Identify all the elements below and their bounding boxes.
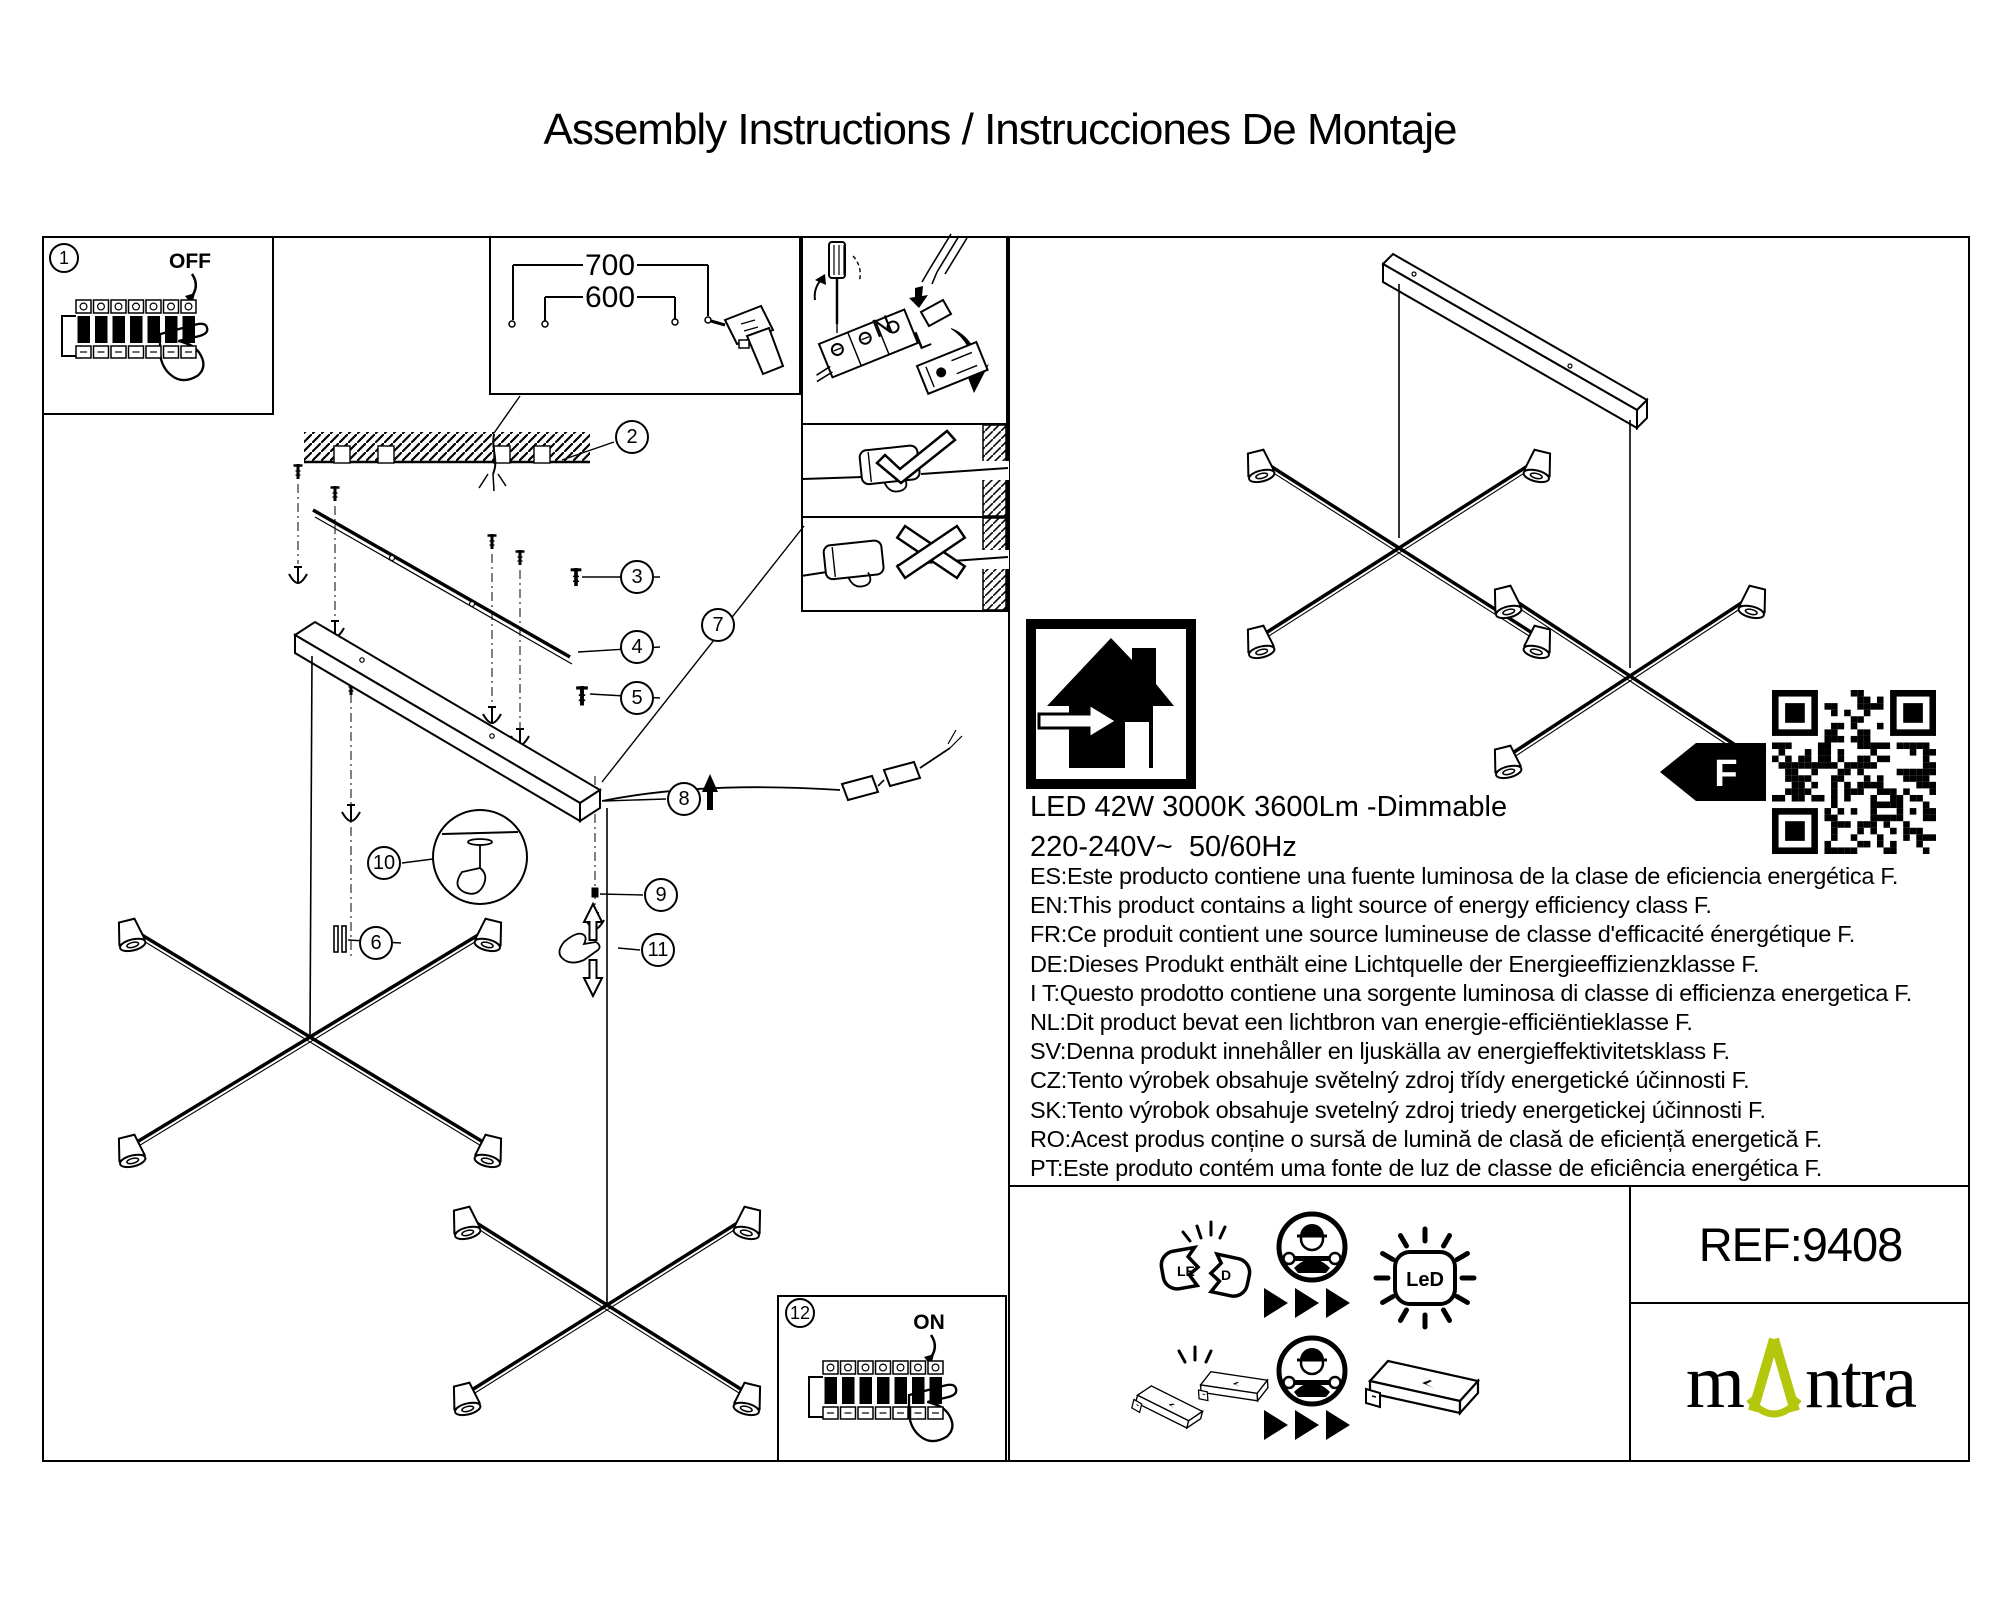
suspension-wire-left xyxy=(310,656,312,1035)
exploded-assembly-drawing xyxy=(42,236,1008,1462)
indoor-use-icon xyxy=(1025,618,1197,790)
lang-line-pt: PT:Este produto contém uma fonte de luz … xyxy=(1030,1154,1960,1183)
energy-class-text: ES:Este producto contiene una fuente lum… xyxy=(1030,862,1960,1183)
callout-3: 3 xyxy=(620,560,654,594)
detail-magnifier xyxy=(433,810,527,904)
breaker-on-label: ON xyxy=(913,1311,945,1334)
lang-line-sk: SK:Tento výrobok obsahuje svetelný zdroj… xyxy=(1030,1096,1960,1125)
lang-line-fr: FR:Ce produit contient une source lumine… xyxy=(1030,920,1960,949)
ceiling-hatch xyxy=(304,432,590,463)
lang-line-es: ES:Este producto contiene una fuente lum… xyxy=(1030,862,1960,891)
spacer-tube-part xyxy=(334,926,346,952)
mounting-rail xyxy=(313,510,572,664)
up-arrow-icon xyxy=(702,774,718,810)
lang-line-it: I T:Questo prodotto contiene una sorgent… xyxy=(1030,979,1960,1008)
energy-class-label: F xyxy=(1660,742,1768,804)
callout-6: 6 xyxy=(359,926,393,960)
leader-dimensions xyxy=(494,396,520,433)
canopy-bar xyxy=(295,622,600,821)
product-reference: REF:9408 xyxy=(1631,1187,1970,1302)
broken-driver-icon xyxy=(1130,1347,1268,1431)
broken-led-right-label: D xyxy=(1221,1267,1231,1283)
lang-line-cz: CZ:Tento výrobek obsahuje světelný zdroj… xyxy=(1030,1066,1960,1095)
technician-icon xyxy=(1279,1214,1345,1280)
brand-caret-icon xyxy=(1744,1331,1804,1427)
connector-cable xyxy=(602,730,962,801)
callout-8: 8 xyxy=(667,782,701,816)
led-ok-icon: LeD xyxy=(1376,1229,1474,1327)
technician-icon xyxy=(1279,1338,1345,1404)
adjust-up-arrow-icon xyxy=(584,904,602,940)
broken-led-left-label: LE xyxy=(1177,1263,1195,1279)
driver-icon xyxy=(1366,1361,1478,1413)
service-icons-panel: LE D LeD xyxy=(1010,1187,1627,1460)
lang-line-nl: NL:Dit product bevat een lichtbron van e… xyxy=(1030,1008,1960,1037)
callout-9: 9 xyxy=(644,878,678,912)
broken-led-icon: LE D xyxy=(1159,1222,1252,1299)
fixture-cross-arms xyxy=(1243,449,1770,781)
lang-line-sv: SV:Denna produkt innehåller en ljuskälla… xyxy=(1030,1037,1960,1066)
spec-line-1: LED 42W 3000K 3600Lm -Dimmable xyxy=(1030,788,1670,827)
callout-2: 2 xyxy=(615,420,649,454)
proceed-arrows-icon xyxy=(1264,1410,1350,1440)
callout-12: 12 xyxy=(785,1298,815,1328)
brand-logo: m ntra xyxy=(1631,1304,1970,1460)
lang-line-de: DE:Dieses Produkt enthält eine Lichtquel… xyxy=(1030,950,1960,979)
brand-logo-prefix: m xyxy=(1686,1339,1743,1426)
callout-10: 10 xyxy=(367,846,401,880)
adjust-down-arrow-icon xyxy=(584,960,602,996)
page-title: Assembly Instructions / Instrucciones De… xyxy=(0,104,2000,156)
callout-11: 11 xyxy=(641,933,675,967)
proceed-arrows-icon xyxy=(1264,1288,1350,1318)
led-label: LeD xyxy=(1406,1269,1444,1291)
callout-7: 7 xyxy=(701,608,735,642)
fixture-cross-arms xyxy=(114,918,765,1418)
brand-logo-suffix: ntra xyxy=(1805,1339,1915,1426)
callout-4: 4 xyxy=(620,630,654,664)
callout-1: 1 xyxy=(49,243,79,273)
energy-arrow-icon xyxy=(1660,743,1766,801)
callout-5: 5 xyxy=(620,681,654,715)
assembly-instructions-sheet: { "title": "Assembly Instructions / Inst… xyxy=(0,0,2000,1600)
qr-code xyxy=(1772,690,1936,854)
canopy-bar xyxy=(1383,254,1647,428)
lang-line-ro: RO:Acest produs conține o sursă de lumin… xyxy=(1030,1125,1960,1154)
energy-class-letter: F xyxy=(1714,753,1737,795)
lang-line-en: EN:This product contains a light source … xyxy=(1030,891,1960,920)
